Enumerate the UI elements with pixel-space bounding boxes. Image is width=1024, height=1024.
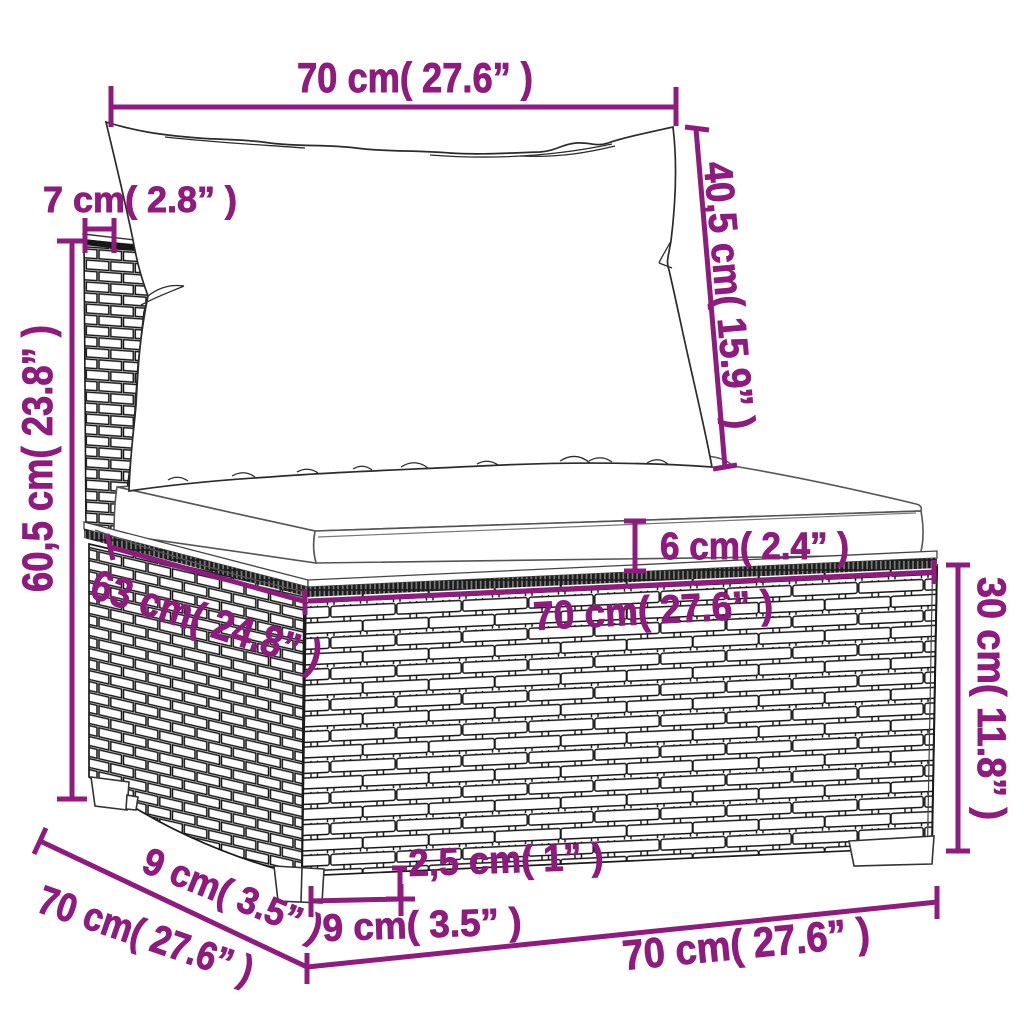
- svg-text:2,5 cm( 1” ): 2,5 cm( 1” ): [408, 836, 604, 885]
- svg-text:9 cm( 3.5” ): 9 cm( 3.5” ): [322, 901, 522, 950]
- svg-text:70 cm( 27.6” ): 70 cm( 27.6” ): [297, 54, 533, 101]
- svg-text:30 cm( 11.8” ): 30 cm( 11.8” ): [969, 577, 1013, 820]
- svg-text:6 cm( 2.4” ): 6 cm( 2.4” ): [660, 526, 849, 568]
- svg-text:60,5 cm( 23.8” ): 60,5 cm( 23.8” ): [14, 325, 62, 592]
- svg-text:7 cm( 2.8” ): 7 cm( 2.8” ): [43, 179, 237, 220]
